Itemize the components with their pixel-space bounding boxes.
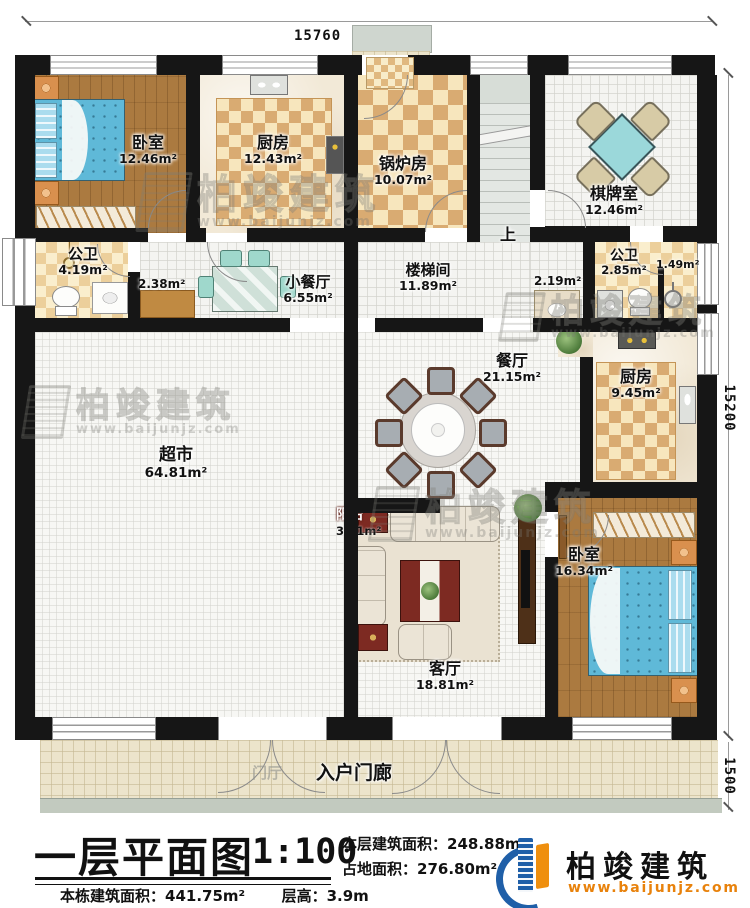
window[interactable] xyxy=(572,717,672,740)
total-area-label: 本栋建筑面积： xyxy=(60,887,165,905)
living-entry-opening[interactable] xyxy=(392,717,502,740)
bay-window[interactable] xyxy=(2,238,36,306)
dining-table-hub xyxy=(431,423,445,437)
total-area-row: 本栋建筑面积：441.75m² 层高：3.9m xyxy=(60,885,369,906)
room-label-market: 超市 64.81m² xyxy=(141,446,211,481)
wall-exterior-left xyxy=(15,75,35,740)
room-area: 12.43m² xyxy=(228,152,318,166)
land-area-label: 占地面积： xyxy=(342,860,417,878)
stair-landing xyxy=(480,75,530,104)
chair xyxy=(248,250,270,267)
room-name: 厨房 xyxy=(228,134,318,152)
wall-interior xyxy=(200,228,206,242)
room-area: 2.85m² xyxy=(596,264,652,277)
room-label-shower: 1.49m² xyxy=(656,258,700,271)
room-area: 6.55m² xyxy=(270,291,346,305)
wall-interior xyxy=(530,75,545,190)
market-entry-opening[interactable] xyxy=(218,717,327,740)
window[interactable] xyxy=(222,55,318,75)
room-area: 12.46m² xyxy=(103,152,193,166)
tv xyxy=(521,550,530,608)
window[interactable] xyxy=(470,55,528,75)
room-label-kitchen1: 厨房 12.43m² xyxy=(228,134,318,167)
room-name: 楼梯间 xyxy=(387,262,469,279)
room-area: 2.19m² xyxy=(534,274,581,288)
room-name: 入户门廊 xyxy=(296,763,412,785)
land-area-row: 占地面积：276.80m² xyxy=(342,858,497,879)
room-area: 64.81m² xyxy=(141,466,211,482)
toilet-tank xyxy=(55,306,77,316)
wardrobe xyxy=(36,206,136,230)
room-label-living: 客厅 18.81m² xyxy=(410,660,480,693)
nightstand xyxy=(33,76,59,100)
total-area-value: 441.75m² xyxy=(165,887,245,905)
plant xyxy=(514,494,542,522)
dimension-top-value: 15760 xyxy=(294,28,341,44)
room-name: 超市 xyxy=(141,446,211,466)
room-name: 客厅 xyxy=(410,660,480,678)
room-name: 厨房 xyxy=(604,368,668,386)
window[interactable] xyxy=(50,55,157,75)
chair xyxy=(198,276,214,298)
title-underline xyxy=(35,877,331,885)
dimension-right-value: 15200 xyxy=(721,384,737,432)
market-floor xyxy=(35,332,344,717)
wall-interior xyxy=(375,318,483,332)
room-label-bath-left: 公卫 4.19m² xyxy=(47,246,119,278)
wall-interior xyxy=(545,482,697,498)
room-name: 公卫 xyxy=(596,248,652,264)
closet-cabinet xyxy=(140,290,195,318)
stove xyxy=(326,136,344,174)
room-label-porch: 入户门廊 xyxy=(296,763,412,785)
wall-interior xyxy=(247,228,344,242)
room-label-dining: 餐厅 21.15m² xyxy=(473,352,551,385)
stove xyxy=(618,332,656,349)
window[interactable] xyxy=(52,717,156,740)
room-name: 锅炉房 xyxy=(360,155,446,173)
room-area: 11.89m² xyxy=(387,279,469,293)
rear-step-slab xyxy=(352,25,432,53)
logo-building-orange xyxy=(536,843,549,889)
kitchen-sink xyxy=(250,75,288,95)
armchair xyxy=(398,624,452,660)
room-area: 1.49m² xyxy=(656,258,699,271)
room-area: 3.71m² xyxy=(336,524,382,538)
wall-interior xyxy=(15,318,290,332)
pillow xyxy=(668,623,692,673)
floor-plan-page: 卧室 12.46m² 厨房 12.43m² 锅炉房 10.07m² 棋牌室 12… xyxy=(0,0,750,908)
nightstand xyxy=(33,181,59,205)
room-area: 12.46m² xyxy=(564,203,664,217)
plan-title: 一层平面图 xyxy=(34,824,254,885)
toilet xyxy=(628,288,652,309)
stair-treads[interactable] xyxy=(480,103,530,243)
pillow xyxy=(35,103,57,139)
wall-interior xyxy=(530,227,545,242)
wall-interior xyxy=(467,75,480,242)
pillow xyxy=(35,142,57,178)
room-area: 18.81m² xyxy=(410,678,480,692)
chair xyxy=(427,367,455,395)
plant xyxy=(421,582,439,600)
pillow xyxy=(668,570,692,620)
wall-interior xyxy=(663,226,697,242)
wall-shower-partition xyxy=(658,268,664,318)
wash-basin xyxy=(92,282,128,314)
chair xyxy=(479,419,507,447)
stairs-up-label: 上 xyxy=(494,226,522,244)
room-label-foyer: 门厅 xyxy=(252,762,296,783)
shower-head xyxy=(664,290,682,308)
room-name: 门厅 xyxy=(252,764,282,782)
porch-front-step xyxy=(40,798,722,813)
toilet-tank xyxy=(630,307,650,316)
room-label-closet: 2.38m² xyxy=(138,277,198,291)
brand-url[interactable]: www.baijunjz.com xyxy=(568,880,740,896)
washing-machine xyxy=(597,290,623,318)
nightstand xyxy=(671,540,697,565)
wall-interior xyxy=(545,498,558,512)
wall-interior xyxy=(358,228,425,242)
room-label-stairwell: 楼梯间 11.89m² xyxy=(387,262,469,294)
room-name: 餐厅 xyxy=(473,352,551,370)
room-label-vanity: 2.19m² xyxy=(534,274,586,288)
bed-sheet xyxy=(590,568,620,674)
room-area: 16.34m² xyxy=(550,564,618,578)
wall-exterior-right xyxy=(697,75,717,740)
window[interactable] xyxy=(568,55,672,75)
room-label-boiler: 锅炉房 10.07m² xyxy=(360,155,446,188)
room-label-small-dining: 小餐厅 6.55m² xyxy=(270,274,346,306)
dimension-line-top xyxy=(25,21,713,22)
room-area: 10.07m² xyxy=(360,173,446,187)
bay-window[interactable] xyxy=(697,243,719,305)
room-label-bedroom2: 卧室 16.34m² xyxy=(550,546,618,579)
toilet xyxy=(52,286,80,308)
chair xyxy=(427,471,455,499)
room-area: 21.15m² xyxy=(473,370,551,384)
room-label-kitchen2: 厨房 9.45m² xyxy=(604,368,668,401)
wall-interior xyxy=(533,318,697,332)
wall-interior xyxy=(545,557,558,717)
wall-interior xyxy=(35,228,148,242)
storey-height-label: 层高： xyxy=(282,887,327,905)
wall-interior xyxy=(344,75,358,717)
wall-interior xyxy=(344,498,440,513)
bay-window[interactable] xyxy=(697,313,719,375)
room-name: 卧室 xyxy=(550,546,618,564)
brand-logo-icon xyxy=(494,836,558,902)
room-area: 2.38m² xyxy=(138,277,185,291)
side-table xyxy=(358,624,388,651)
shower-stem xyxy=(672,282,674,292)
logo-building-blue xyxy=(518,838,533,892)
kitchen-sink xyxy=(679,386,696,424)
room-name: 棋牌室 xyxy=(564,185,664,203)
room-label-bath-right: 公卫 2.85m² xyxy=(596,248,652,277)
floor-area-label: 本层建筑面积： xyxy=(342,835,447,853)
stairs-up-text: 上 xyxy=(494,226,522,244)
room-label-chess: 棋牌室 12.46m² xyxy=(564,185,664,218)
storey-height-value: 3.9m xyxy=(327,887,369,905)
room-name: 公卫 xyxy=(47,246,119,263)
dimension-porch-value: 1500 xyxy=(721,756,737,796)
room-name: 卧室 xyxy=(103,134,193,152)
room-name: 小餐厅 xyxy=(270,274,346,291)
room-label-bedroom1: 卧室 12.46m² xyxy=(103,134,193,167)
land-area-value: 276.80m² xyxy=(417,860,497,878)
wall-interior xyxy=(580,357,593,482)
room-area: 4.19m² xyxy=(47,263,119,277)
wall-interior xyxy=(545,226,630,242)
room-area: 9.45m² xyxy=(604,386,668,400)
nightstand xyxy=(671,678,697,703)
chair xyxy=(375,419,403,447)
